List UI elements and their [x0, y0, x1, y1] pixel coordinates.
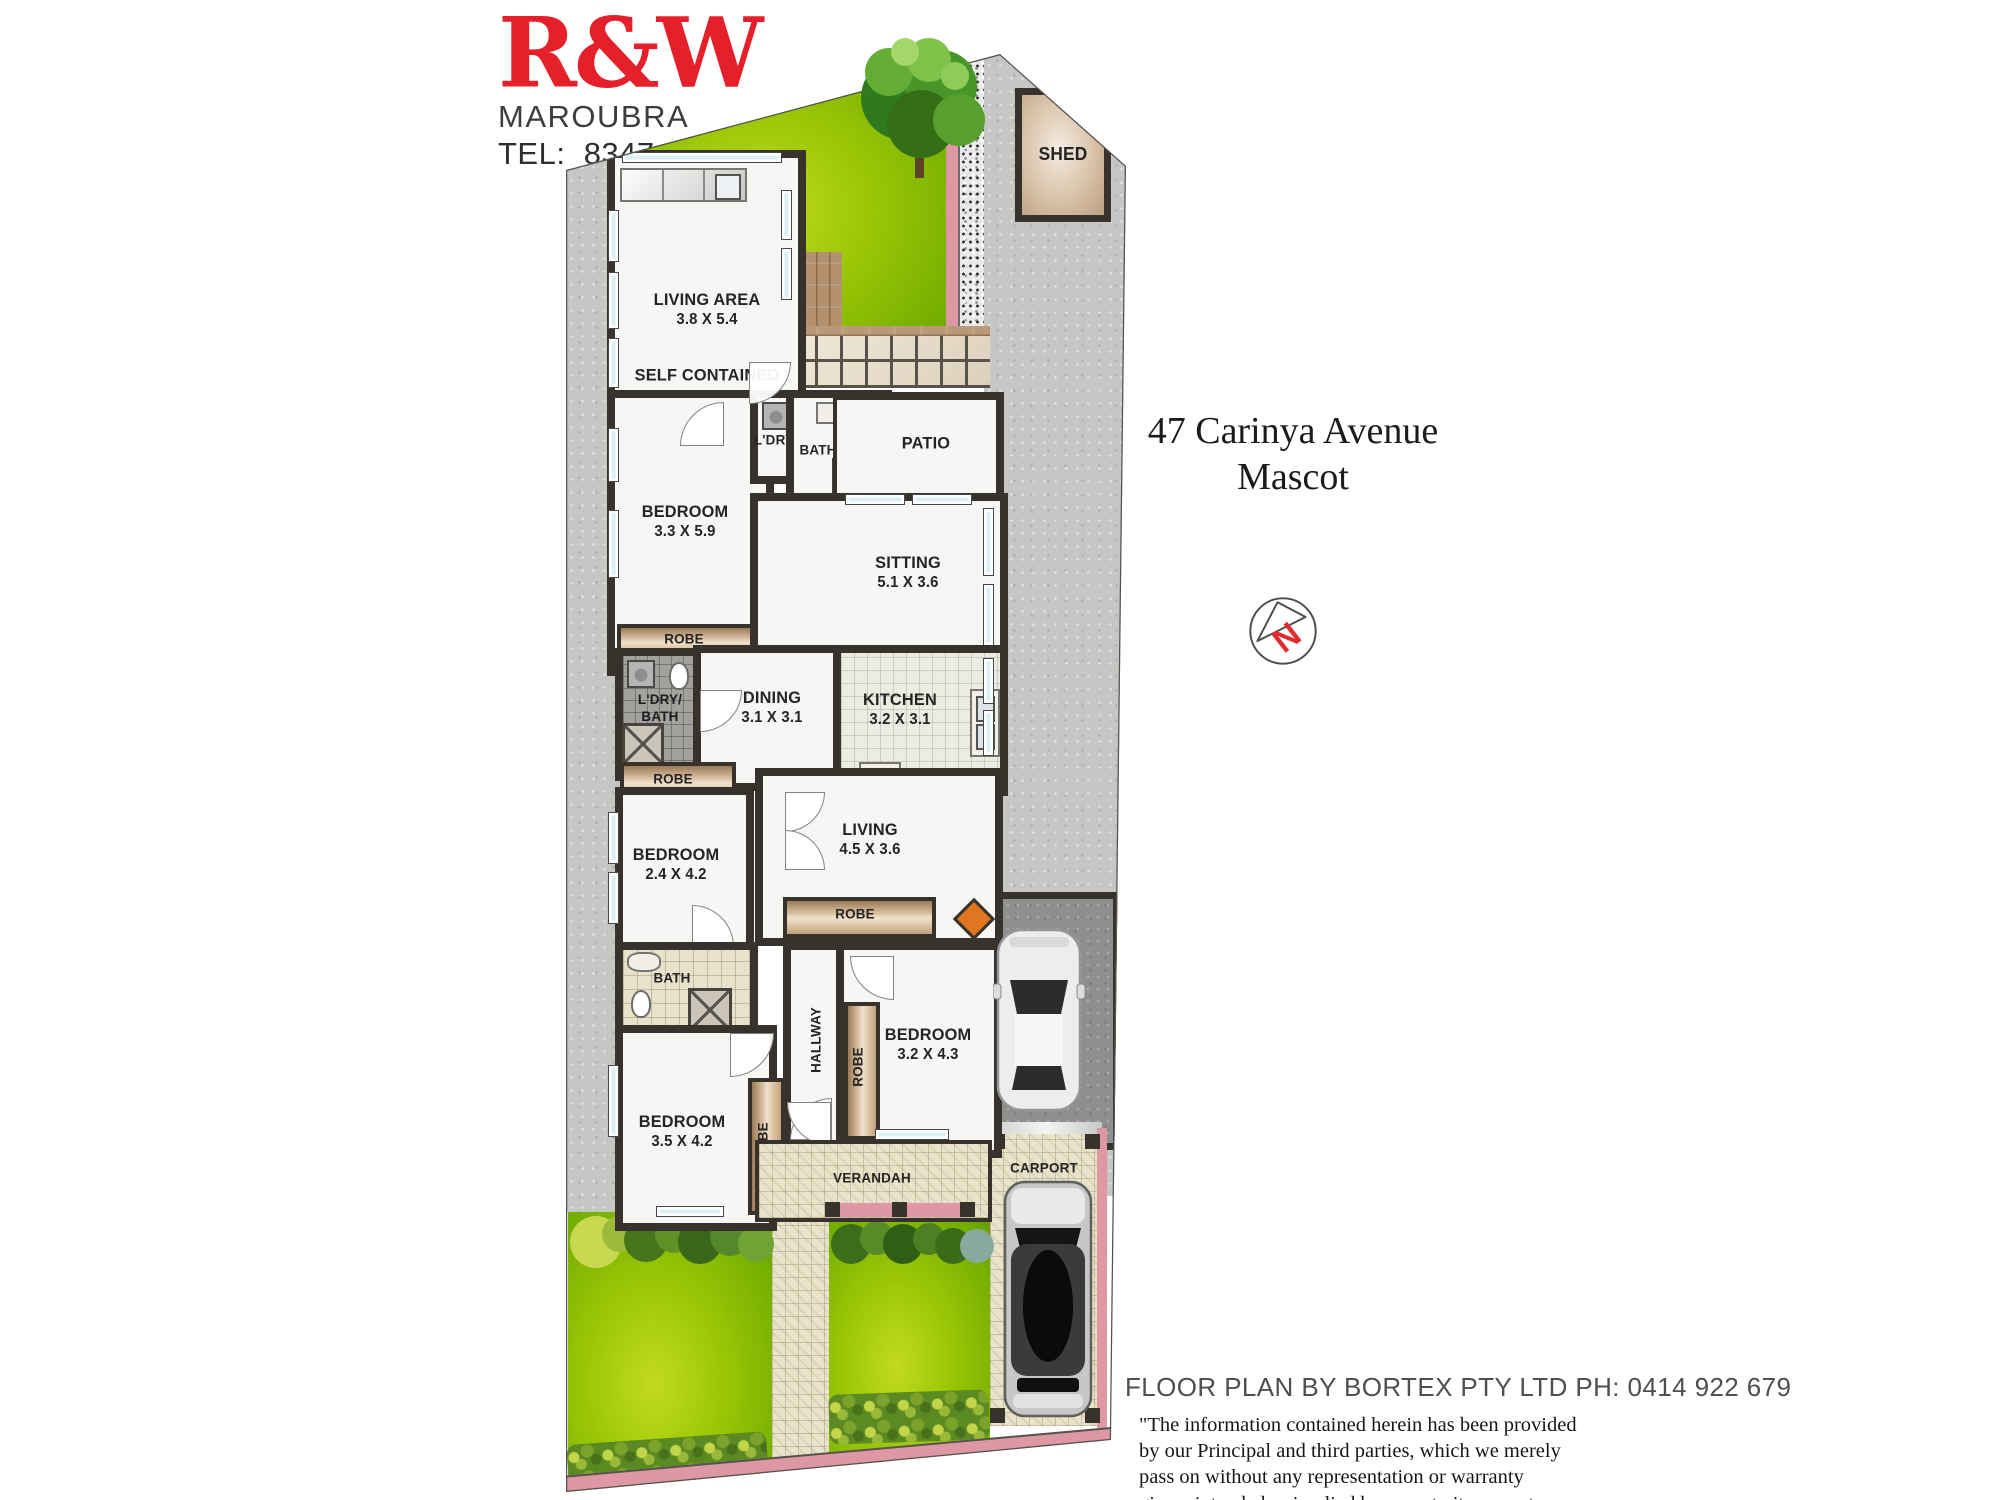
room-label-living-area: LIVING AREA 3.8 X 5.4 [653, 290, 760, 330]
front-hedge-right [828, 1389, 990, 1445]
window [781, 190, 792, 240]
window [983, 508, 994, 576]
window [608, 338, 619, 388]
carport-step [990, 1122, 1102, 1134]
room-label-bedroom-1: BEDROOM 3.3 X 5.9 [642, 502, 729, 542]
room-label-verandah: VERANDAH [833, 1169, 911, 1186]
north-arrow-icon: N [1248, 596, 1318, 671]
carport-edge-right [1097, 1128, 1107, 1428]
room-label-dining: DINING 3.1 X 3.1 [741, 688, 802, 728]
property-address: 47 Carinya Avenue Mascot [1093, 408, 1493, 501]
sink-icon [715, 174, 741, 200]
window [622, 152, 782, 163]
property-lot: SHED [560, 40, 1140, 1500]
room-label-carport: CARPORT [1010, 1159, 1078, 1176]
disclaimer-text: "The information contained herein has be… [1125, 1412, 1579, 1500]
window [608, 812, 619, 864]
room-label-patio: PATIO [902, 434, 950, 455]
fireplace-icon [953, 898, 995, 940]
window [608, 1065, 619, 1137]
deck-edge [790, 326, 990, 336]
toilet-icon [669, 662, 689, 690]
room-label-bedroom-3: BEDROOM 3.2 X 4.3 [885, 1025, 972, 1065]
tel-label: TEL: [498, 136, 565, 171]
verandah-post [825, 1202, 840, 1217]
carport-post [1085, 1134, 1100, 1149]
room-label-bath-upper: BATH [799, 441, 836, 458]
window [983, 710, 994, 756]
backyard-tree [843, 28, 998, 203]
room-label-kitchen: KITCHEN 3.2 X 3.1 [863, 690, 937, 730]
window [781, 248, 792, 300]
robe-label-4: ROBE [849, 1047, 866, 1087]
room-label-ldry-bath: L'DRY/ BATH [638, 691, 682, 725]
window [845, 494, 905, 505]
floor-plan-credit: FLOOR PLAN BY BORTEX PTY LTD PH: 0414 92… [1125, 1372, 1791, 1403]
room-label-hallway: HALLWAY [807, 1007, 824, 1073]
room-label-sitting: SITTING 5.1 X 3.6 [875, 553, 941, 593]
window [608, 872, 619, 924]
garden-shrubs-right [829, 1212, 994, 1281]
window [608, 272, 619, 329]
verandah-post [960, 1202, 975, 1217]
room-label-bedroom-2: BEDROOM 2.4 X 4.2 [633, 845, 720, 885]
toilet-icon [631, 990, 651, 1018]
car-carport [1001, 1180, 1095, 1423]
window [983, 658, 994, 704]
shower-icon [622, 723, 664, 765]
window [875, 1129, 949, 1140]
floor-plan: SHED [560, 40, 1140, 1500]
shed: SHED [1015, 88, 1111, 222]
car-driveway [993, 928, 1085, 1117]
window [608, 210, 619, 262]
window [983, 584, 994, 646]
floor-plan-page: R&W MAROUBRA TEL: 8347 5000 47 Carinya A… [0, 0, 2000, 1500]
room-label-bedroom-4: BEDROOM 3.5 X 4.2 [639, 1112, 726, 1152]
window [608, 510, 619, 578]
address-line1: 47 Carinya Avenue [1093, 408, 1493, 454]
verandah-post [892, 1202, 907, 1217]
window [912, 494, 972, 505]
address-line2: Mascot [1093, 454, 1493, 500]
footer: FLOOR PLAN BY BORTEX PTY LTD PH: 0414 92… [1125, 1372, 1791, 1500]
shed-label: SHED [1039, 144, 1088, 166]
washer-icon [627, 660, 655, 688]
paver-terrace [790, 336, 990, 388]
window [608, 428, 619, 482]
robe-label-3: ROBE [835, 905, 875, 922]
room-label-living: LIVING 4.5 X 3.6 [839, 820, 900, 860]
window [656, 1206, 724, 1217]
room-label-bath-lower: BATH [653, 969, 690, 986]
kitchenette-counter [620, 168, 747, 202]
robe-label-2: ROBE [653, 770, 693, 787]
